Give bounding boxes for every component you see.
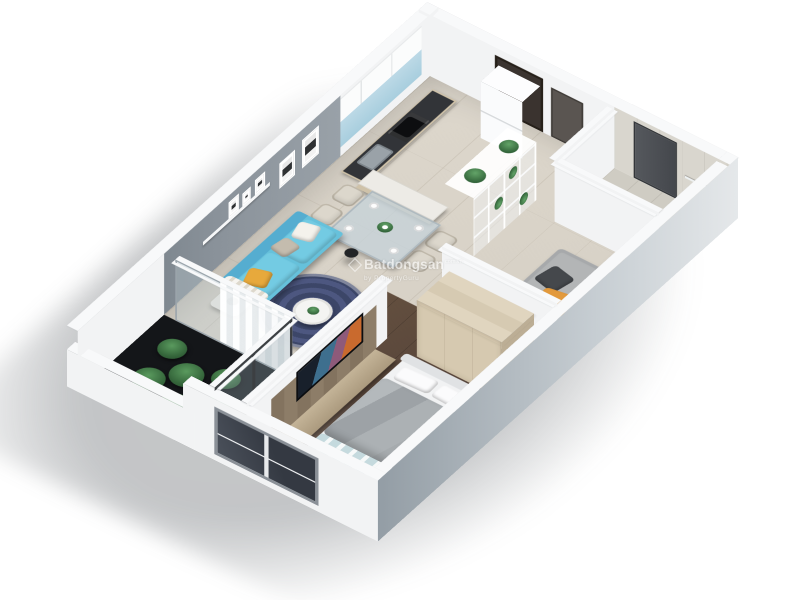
sofa-pillow-yellow: [242, 267, 274, 289]
shelf-plant: [520, 190, 528, 208]
watermark-brand: Batdongsancom.vn: [364, 256, 463, 274]
plate: [387, 246, 401, 255]
kitchen-cooktop: [387, 112, 429, 143]
dining-chair: [329, 183, 367, 208]
watermark-byline: by PropertyGuru: [364, 275, 480, 282]
shelf-plant-top: [495, 137, 523, 156]
balcony-plant: [151, 335, 193, 363]
floor-plan-render: Batdongsancom.vn by PropertyGuru: [0, 0, 800, 600]
table-plant: [305, 305, 322, 316]
watermark-tld: com.vn: [445, 259, 463, 265]
kitchen-island: [356, 171, 448, 224]
shelf-plant-top: [460, 165, 491, 186]
dining-chair: [308, 202, 346, 227]
table-flowers: [374, 220, 396, 235]
sofa-pillow-gray: [269, 237, 302, 259]
kitchen-sink: [356, 143, 394, 171]
bed-pillow: [392, 366, 440, 394]
wall-art-frame: [279, 150, 295, 189]
flower-vase: [381, 224, 389, 230]
plate: [342, 224, 356, 233]
plate: [412, 224, 426, 233]
watermark: Batdongsancom.vn by PropertyGuru: [350, 256, 480, 282]
fridge-seam: [481, 110, 523, 132]
shelf-plant: [509, 164, 517, 182]
watermark-logo-icon: [348, 258, 362, 272]
wall-art-frame: [302, 125, 319, 168]
sofa-cushion: [272, 218, 339, 265]
kitchen-island-top: [358, 170, 449, 222]
sofa-pillow-white: [290, 221, 322, 243]
shelf-plant: [495, 194, 503, 212]
plate: [367, 201, 381, 210]
